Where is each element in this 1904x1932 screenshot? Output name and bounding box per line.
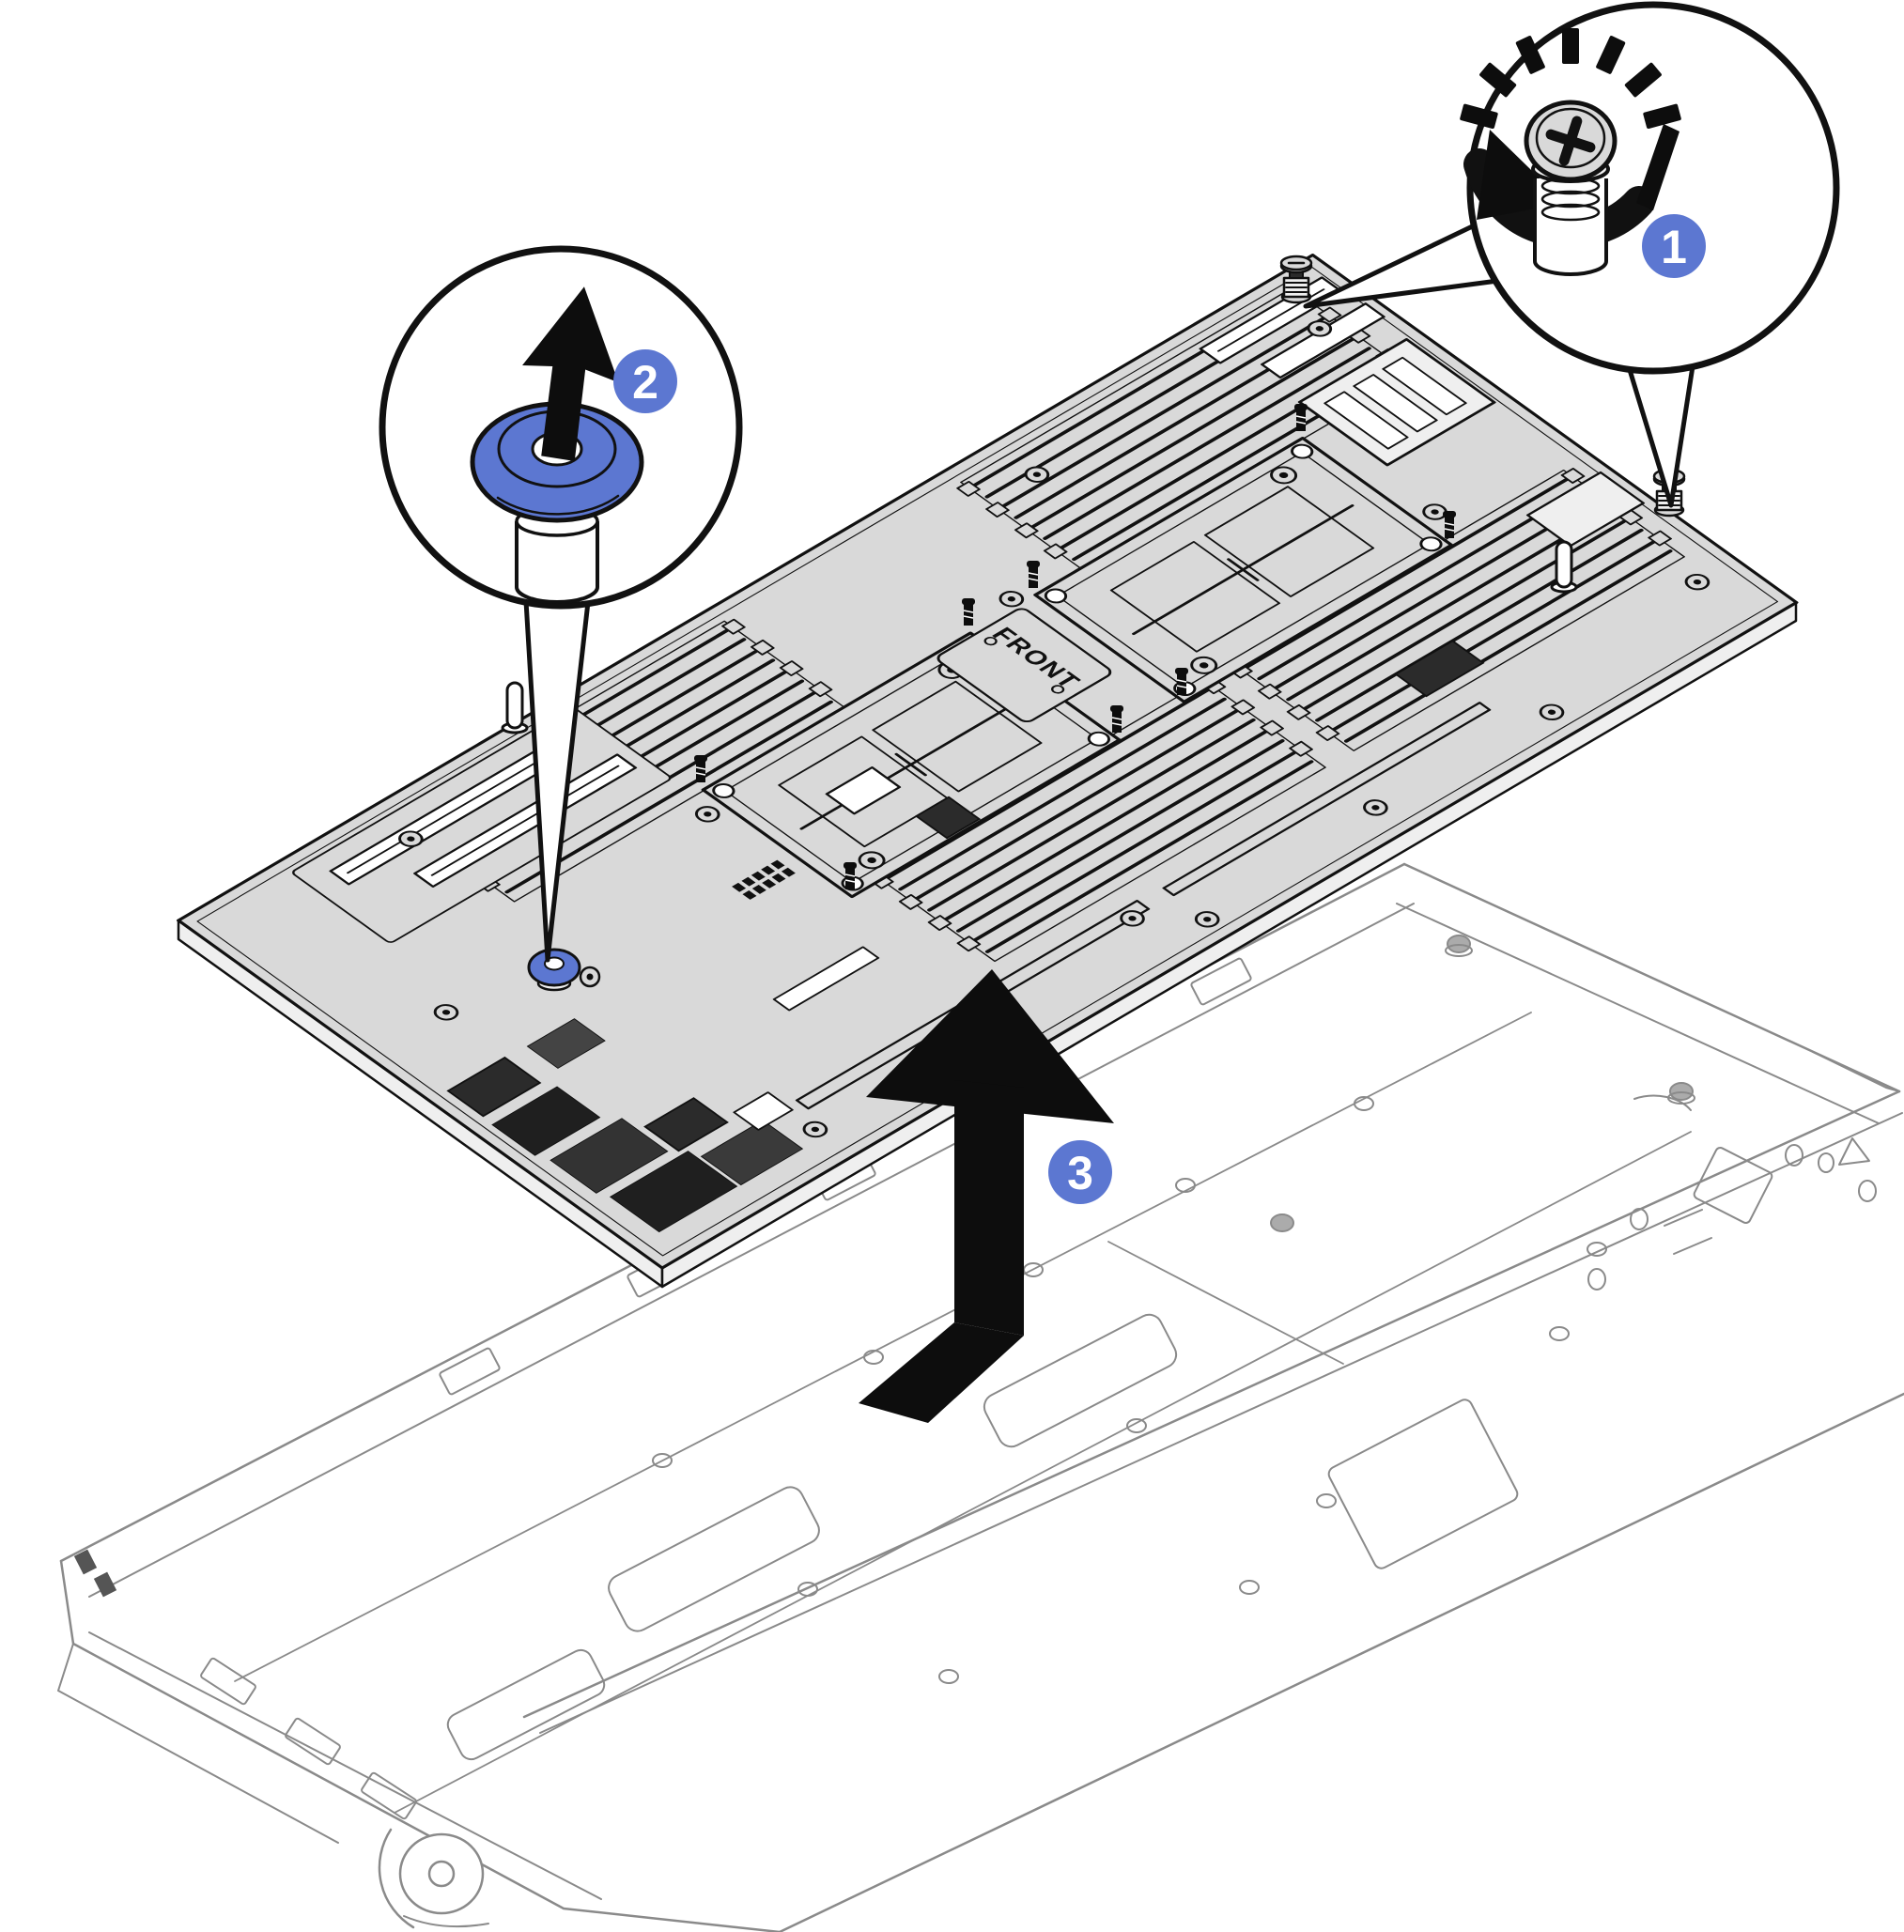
tray-latch-handle <box>379 1830 488 1927</box>
tray-standoffs <box>1271 935 1695 1231</box>
guide-pin-icon <box>503 683 527 733</box>
step-1-number: 1 <box>1661 221 1687 273</box>
callout-thumbscrew <box>1526 102 1615 274</box>
guide-pin-icon <box>1552 542 1576 592</box>
step-3-badge: 3 <box>1048 1140 1112 1204</box>
callout-2-bubble: 2 <box>382 249 739 606</box>
thumbscrew-icon <box>1281 256 1311 302</box>
figure-canvas: FRONT <box>0 0 1904 1932</box>
step-3-number: 3 <box>1067 1147 1093 1199</box>
step-2-number: 2 <box>632 356 658 409</box>
step-1-badge: 1 <box>1642 214 1706 278</box>
hardware-removal-figure: FRONT <box>0 0 1904 1932</box>
tray-end-wall-details <box>1588 1052 1899 1290</box>
callout-1-bubble: 1 <box>1460 5 1836 371</box>
step-2-badge: 2 <box>613 349 677 413</box>
